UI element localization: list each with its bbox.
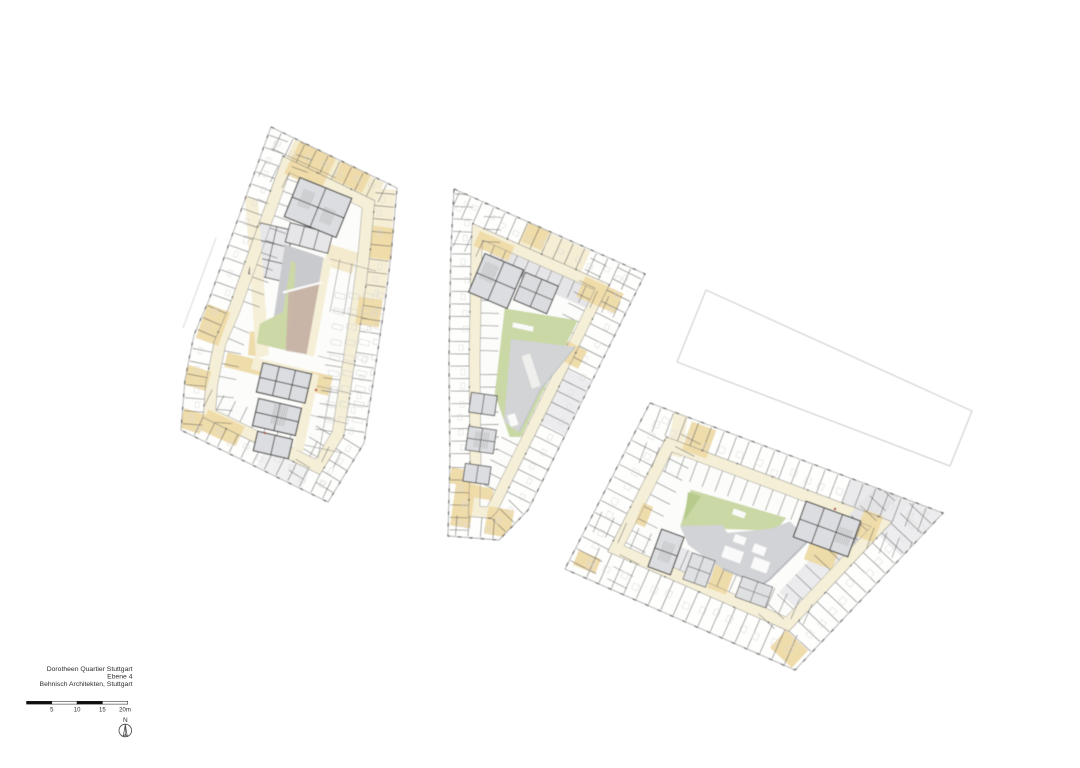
svg-text:N: N <box>123 717 128 724</box>
svg-text:20m: 20m <box>119 708 131 714</box>
svg-text:Dorotheen Quartier Stuttgart: Dorotheen Quartier Stuttgart <box>47 666 133 673</box>
svg-text:Ebene 4: Ebene 4 <box>107 674 133 681</box>
svg-text:Behnisch Architekten, Stuttgar: Behnisch Architekten, Stuttgart <box>40 681 133 688</box>
svg-text:10: 10 <box>74 708 81 714</box>
svg-text:15: 15 <box>99 708 106 714</box>
